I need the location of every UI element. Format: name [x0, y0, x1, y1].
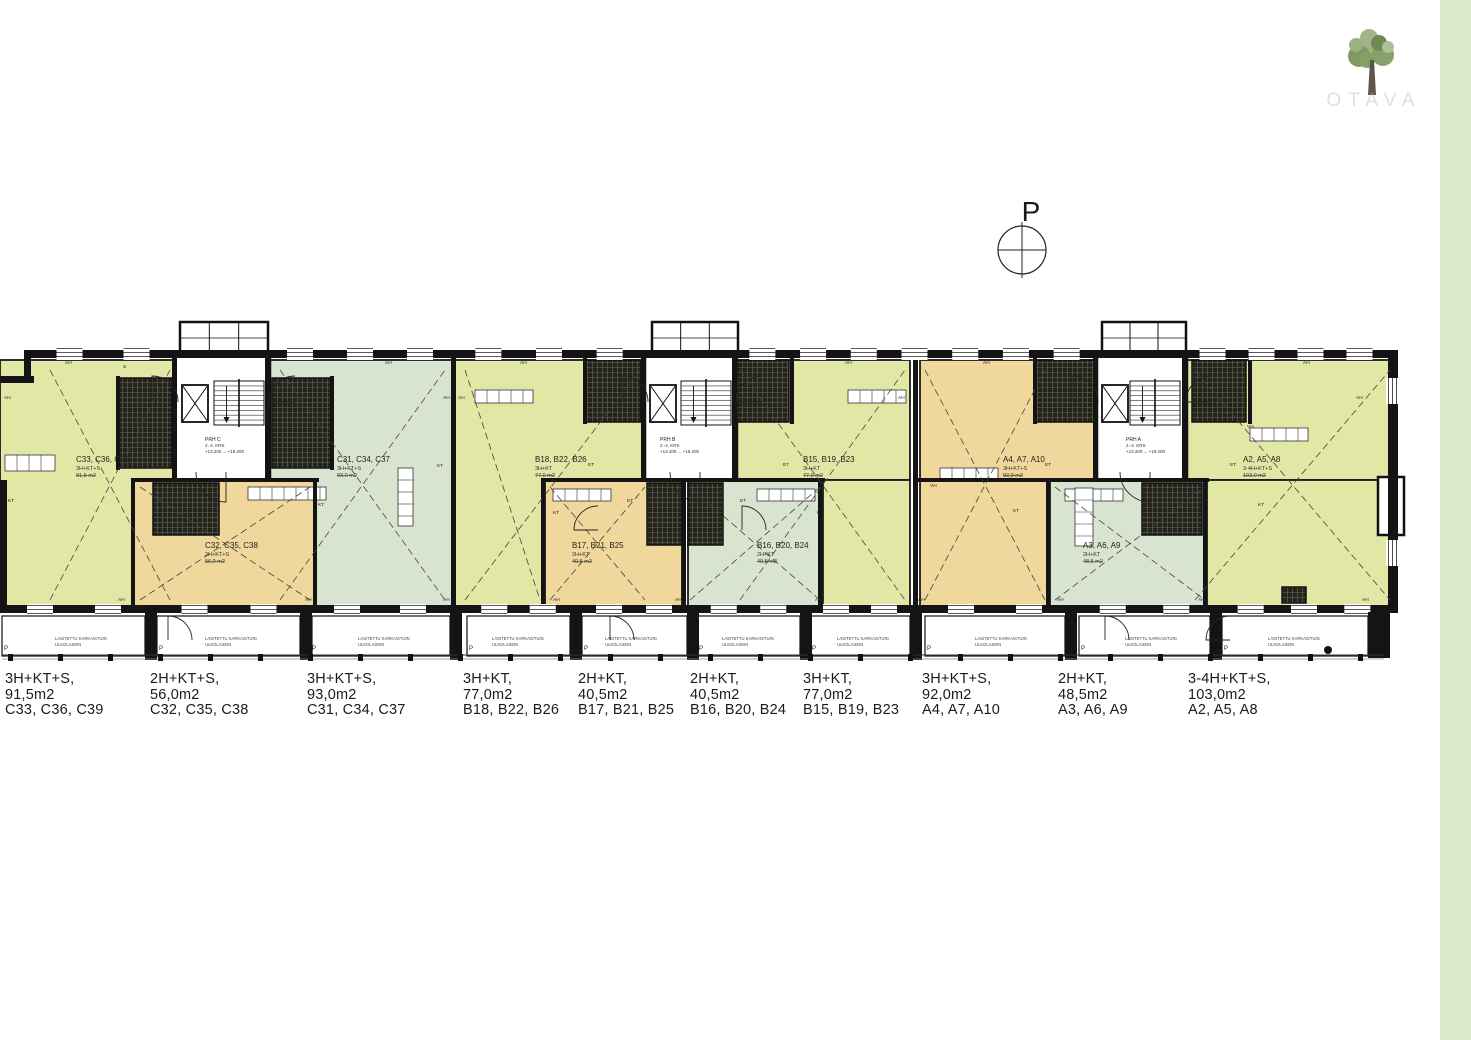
bathroom-hatched-area: [737, 360, 789, 422]
legend-ids: C33, C36, C39: [5, 703, 104, 719]
bathroom-hatched-area: [647, 483, 682, 545]
room-label-kt: KT: [1258, 502, 1264, 508]
room-label-kt: KT: [553, 510, 559, 516]
legend-ids: A4, A7, A10: [922, 703, 1000, 719]
apartment-area-label: 48,5 m2: [1083, 559, 1103, 565]
legend-ids: A2, A5, A8: [1188, 703, 1271, 719]
room-label-ah: AH: [443, 395, 450, 401]
room-label-et: ET: [320, 463, 326, 469]
bathroom-hatched-area: [688, 483, 723, 545]
svg-text:2.-4. KRS: 2.-4. KRS: [660, 443, 680, 448]
balcony-p-mark: P: [4, 646, 8, 652]
room-label-s: S: [1043, 364, 1046, 370]
svg-text:ULKOLASEIN: ULKOLASEIN: [605, 642, 631, 647]
legend-ids: C32, C35, C38: [150, 703, 249, 719]
room-label-vh: VH: [1247, 424, 1254, 430]
svg-text:+13.200 ... +19.200: +13.200 ... +19.200: [205, 449, 245, 454]
balcony-glazing-note: LASITETTU KARKAISTUIN: [605, 636, 657, 641]
room-label-ah: AH: [443, 597, 450, 603]
room-label-ah: AH: [4, 395, 11, 401]
balcony-p-mark: P: [1081, 646, 1085, 652]
legend-item: 3H+KT+S,93,0m2C31, C34, C37: [307, 672, 406, 719]
svg-text:ULKOLASEIN: ULKOLASEIN: [55, 642, 81, 647]
north-compass: P: [978, 188, 1068, 298]
apartment-ids-label: A2, A5, A8: [1243, 455, 1281, 464]
apartment-area-green: [823, 480, 910, 612]
legend-item: 3H+KT+S,92,0m2A4, A7, A10: [922, 672, 1000, 719]
legend-type: 3H+KT,: [803, 672, 899, 688]
room-label-et: ET: [125, 462, 131, 468]
bathroom-hatched-area: [153, 483, 219, 535]
svg-text:ULKOLASEIN: ULKOLASEIN: [1268, 642, 1294, 647]
room-label-ah: AH: [1303, 360, 1310, 366]
apartment-ids-label: C33, C36, C39: [76, 455, 129, 464]
room-label-ah: AH: [385, 360, 392, 366]
legend-type: 3-4H+KT+S,: [1188, 672, 1271, 688]
room-label-s: S: [123, 364, 126, 370]
legend-item: 2H+KT,48,5m2A3, A6, A9: [1058, 672, 1128, 719]
apartment-ids-label: B15, B19, B23: [803, 455, 855, 464]
room-label-ah: AH: [520, 360, 527, 366]
balcony-glazing-note: LASITETTU KARKAISTUIN: [722, 636, 774, 641]
legend-ids: B18, B22, B26: [463, 703, 559, 719]
apartment-ids-label: B18, B22, B26: [535, 455, 587, 464]
apartment-area-label: 56,0 m2: [205, 559, 225, 565]
apartment-type-label: 2H+KT: [757, 552, 775, 558]
apartment-type-label: 3H+KT: [535, 466, 553, 472]
apartment-ids-label: B17, B21, B25: [572, 541, 624, 550]
legend-area: 56,0m2: [150, 688, 249, 704]
balcony-p-mark: P: [699, 646, 703, 652]
logo-tree-icon: OTAVA: [1322, 18, 1442, 118]
room-label-ah: AH: [458, 395, 465, 401]
svg-text:ULKOLASEIN: ULKOLASEIN: [492, 642, 518, 647]
room-label-ah: AH: [553, 597, 560, 603]
apartment-ids-label: C31, C34, C37: [337, 455, 390, 464]
apartment-area-orange: [920, 480, 1050, 612]
legend-item: 2H+KT+S,56,0m2C32, C35, C38: [150, 672, 249, 719]
room-label-ah: AH: [65, 360, 72, 366]
room-label-et: ET: [588, 462, 594, 468]
apartment-type-label: 3H+KT+S: [1003, 466, 1027, 472]
room-label-et: ET: [1045, 462, 1051, 468]
apartment-area-label: 40,5 m2: [757, 559, 777, 565]
room-label-ah: AH: [983, 360, 990, 366]
legend-area: 77,0m2: [463, 688, 559, 704]
apartment-type-label: 3-4H+KT+S: [1243, 466, 1272, 472]
room-label-kt: KT: [8, 498, 14, 504]
room-label-kt: KT: [1013, 508, 1019, 514]
apartment-type-label: 2H+KT+S: [205, 552, 229, 558]
room-label-ah: AH: [845, 360, 852, 366]
room-label-ah: AH: [118, 597, 125, 603]
room-label-et: ET: [740, 498, 746, 504]
balcony-p-mark: P: [584, 646, 588, 652]
balcony-glazing-note: LASITETTU KARKAISTUIN: [1268, 636, 1320, 641]
legend-area: 92,0m2: [922, 688, 1000, 704]
legend-ids: B15, B19, B23: [803, 703, 899, 719]
legend-item: 3-4H+KT+S,103,0m2A2, A5, A8: [1188, 672, 1271, 719]
svg-text:2.-4. KRS: 2.-4. KRS: [1126, 443, 1146, 448]
legend-area: 103,0m2: [1188, 688, 1271, 704]
balcony-p-mark: P: [1224, 646, 1228, 652]
room-label-ah: AH: [1198, 597, 1205, 603]
legend-area: 91,5m2: [5, 688, 104, 704]
legend-type: 3H+KT+S,: [922, 672, 1000, 688]
page-right-strip: [1440, 0, 1471, 1040]
north-label: P: [1022, 196, 1041, 227]
balcony-p-mark: P: [159, 646, 163, 652]
legend-item: 3H+KT,77,0m2B18, B22, B26: [463, 672, 559, 719]
legend-area: 77,0m2: [803, 688, 899, 704]
svg-text:ULKOLASEIN: ULKOLASEIN: [837, 642, 863, 647]
room-label-kt: KT: [318, 502, 324, 508]
bathroom-hatched-area: [1282, 587, 1306, 603]
room-label-vh: VH: [930, 483, 937, 489]
apartment-ids-label: B16, B20, B24: [757, 541, 809, 550]
legend-item: 3H+KT,77,0m2B15, B19, B23: [803, 672, 899, 719]
room-label-kt: KT: [437, 463, 443, 469]
svg-text:ULKOLASEIN: ULKOLASEIN: [722, 642, 748, 647]
apartment-area-label: 40,5 m2: [572, 559, 592, 565]
balcony-glazing-note: LASITETTU KARKAISTUIN: [55, 636, 107, 641]
room-label-et: ET: [627, 498, 633, 504]
legend-area: 48,5m2: [1058, 688, 1128, 704]
legend-ids: B17, B21, B25: [578, 703, 674, 719]
apartment-area-label: 93,0 m2: [337, 473, 357, 479]
apartment-area-label: 92,0 m2: [1003, 473, 1023, 479]
legend-area: 40,5m2: [690, 688, 786, 704]
bathroom-hatched-area: [1192, 360, 1246, 422]
apartment-ids-label: A4, A7, A10: [1003, 455, 1045, 464]
legend-type: 2H+KT,: [578, 672, 674, 688]
unit-legend: 3H+KT+S,91,5m2C33, C36, C392H+KT+S,56,0m…: [0, 672, 1440, 742]
room-label-et: ET: [783, 462, 789, 468]
balcony-glazing-note: LASITETTU KARKAISTUIN: [492, 636, 544, 641]
apartment-type-label: 2H+KT: [572, 552, 590, 558]
legend-item: 2H+KT,40,5m2B17, B21, B25: [578, 672, 674, 719]
balcony-glazing-note: LASITETTU KARKAISTUIN: [975, 636, 1027, 641]
svg-text:ULKOLASEIN: ULKOLASEIN: [205, 642, 231, 647]
apartment-type-label: 3H+KT: [803, 466, 821, 472]
bathroom-hatched-area: [1142, 483, 1202, 535]
legend-type: 2H+KT,: [1058, 672, 1128, 688]
bathroom-hatched-area: [272, 378, 332, 468]
svg-text:2.-4. KRS: 2.-4. KRS: [205, 443, 225, 448]
room-label-kt: KT: [817, 510, 823, 516]
legend-ids: C31, C34, C37: [307, 703, 406, 719]
svg-text:+13.200 ... +19.200: +13.200 ... +19.200: [1126, 449, 1166, 454]
apartment-area-label: 77,0 m2: [535, 473, 555, 479]
room-label-ah: AH: [898, 395, 905, 401]
apartment-ids-label: A3, A6, A9: [1083, 541, 1121, 550]
apartment-area-label: 77,0 m2: [803, 473, 823, 479]
architectural-sheet: PRH C2.-4. KRS+13.200 ... +19.200PRH B2.…: [0, 0, 1471, 1040]
svg-text:ULKOLASEIN: ULKOLASEIN: [1125, 642, 1151, 647]
floor-plan: PRH C2.-4. KRS+13.200 ... +19.200PRH B2.…: [0, 0, 1471, 1040]
apartment-type-label: 2H+KT: [1083, 552, 1101, 558]
apartment-type-label: 3H+KT+S: [76, 466, 100, 472]
legend-type: 3H+KT+S,: [5, 672, 104, 688]
legend-item: 3H+KT+S,91,5m2C33, C36, C39: [5, 672, 104, 719]
room-label-ah: AH: [1356, 395, 1363, 401]
svg-text:+13.200 ... +19.200: +13.200 ... +19.200: [660, 449, 700, 454]
legend-type: 3H+KT+S,: [307, 672, 406, 688]
svg-text:ULKOLASEIN: ULKOLASEIN: [975, 642, 1001, 647]
balcony-glazing-note: LASITETTU KARKAISTUIN: [205, 636, 257, 641]
balcony-glazing-note: LASITETTU KARKAISTUIN: [358, 636, 410, 641]
balcony-p-mark: P: [469, 646, 473, 652]
room-label-ah: AH: [918, 597, 925, 603]
room-label-ah: AH: [1057, 597, 1064, 603]
apartment-area-label: 103,0 m2: [1243, 473, 1266, 479]
legend-item: 2H+KT,40,5m2B16, B20, B24: [690, 672, 786, 719]
svg-text:ULKOLASEIN: ULKOLASEIN: [358, 642, 384, 647]
apartment-type-label: 3H+KT+S: [337, 466, 361, 472]
apartment-area-label: 91,5 m2: [76, 473, 96, 479]
balcony-glazing-note: LASITETTU KARKAISTUIN: [1125, 636, 1177, 641]
balcony-glazing-note: LASITETTU KARKAISTUIN: [837, 636, 889, 641]
balcony-p-mark: P: [927, 646, 931, 652]
legend-ids: A3, A6, A9: [1058, 703, 1128, 719]
room-label-s: S: [593, 364, 596, 370]
legend-type: 2H+KT,: [690, 672, 786, 688]
legend-area: 93,0m2: [307, 688, 406, 704]
logo-wordmark: OTAVA: [1326, 90, 1421, 111]
room-label-et: ET: [1230, 462, 1236, 468]
plan-dot: [1324, 646, 1332, 654]
legend-type: 3H+KT,: [463, 672, 559, 688]
legend-type: 2H+KT+S,: [150, 672, 249, 688]
legend-ids: B16, B20, B24: [690, 703, 786, 719]
apartment-ids-label: C32, C35, C38: [205, 541, 258, 550]
room-label-ah: AH: [675, 597, 682, 603]
legend-area: 40,5m2: [578, 688, 674, 704]
balcony-p-mark: P: [312, 646, 316, 652]
room-label-ah: AH: [1362, 597, 1369, 603]
room-label-ah: AH: [815, 597, 822, 603]
balcony-p-mark: P: [812, 646, 816, 652]
room-label-ah: AH: [305, 597, 312, 603]
